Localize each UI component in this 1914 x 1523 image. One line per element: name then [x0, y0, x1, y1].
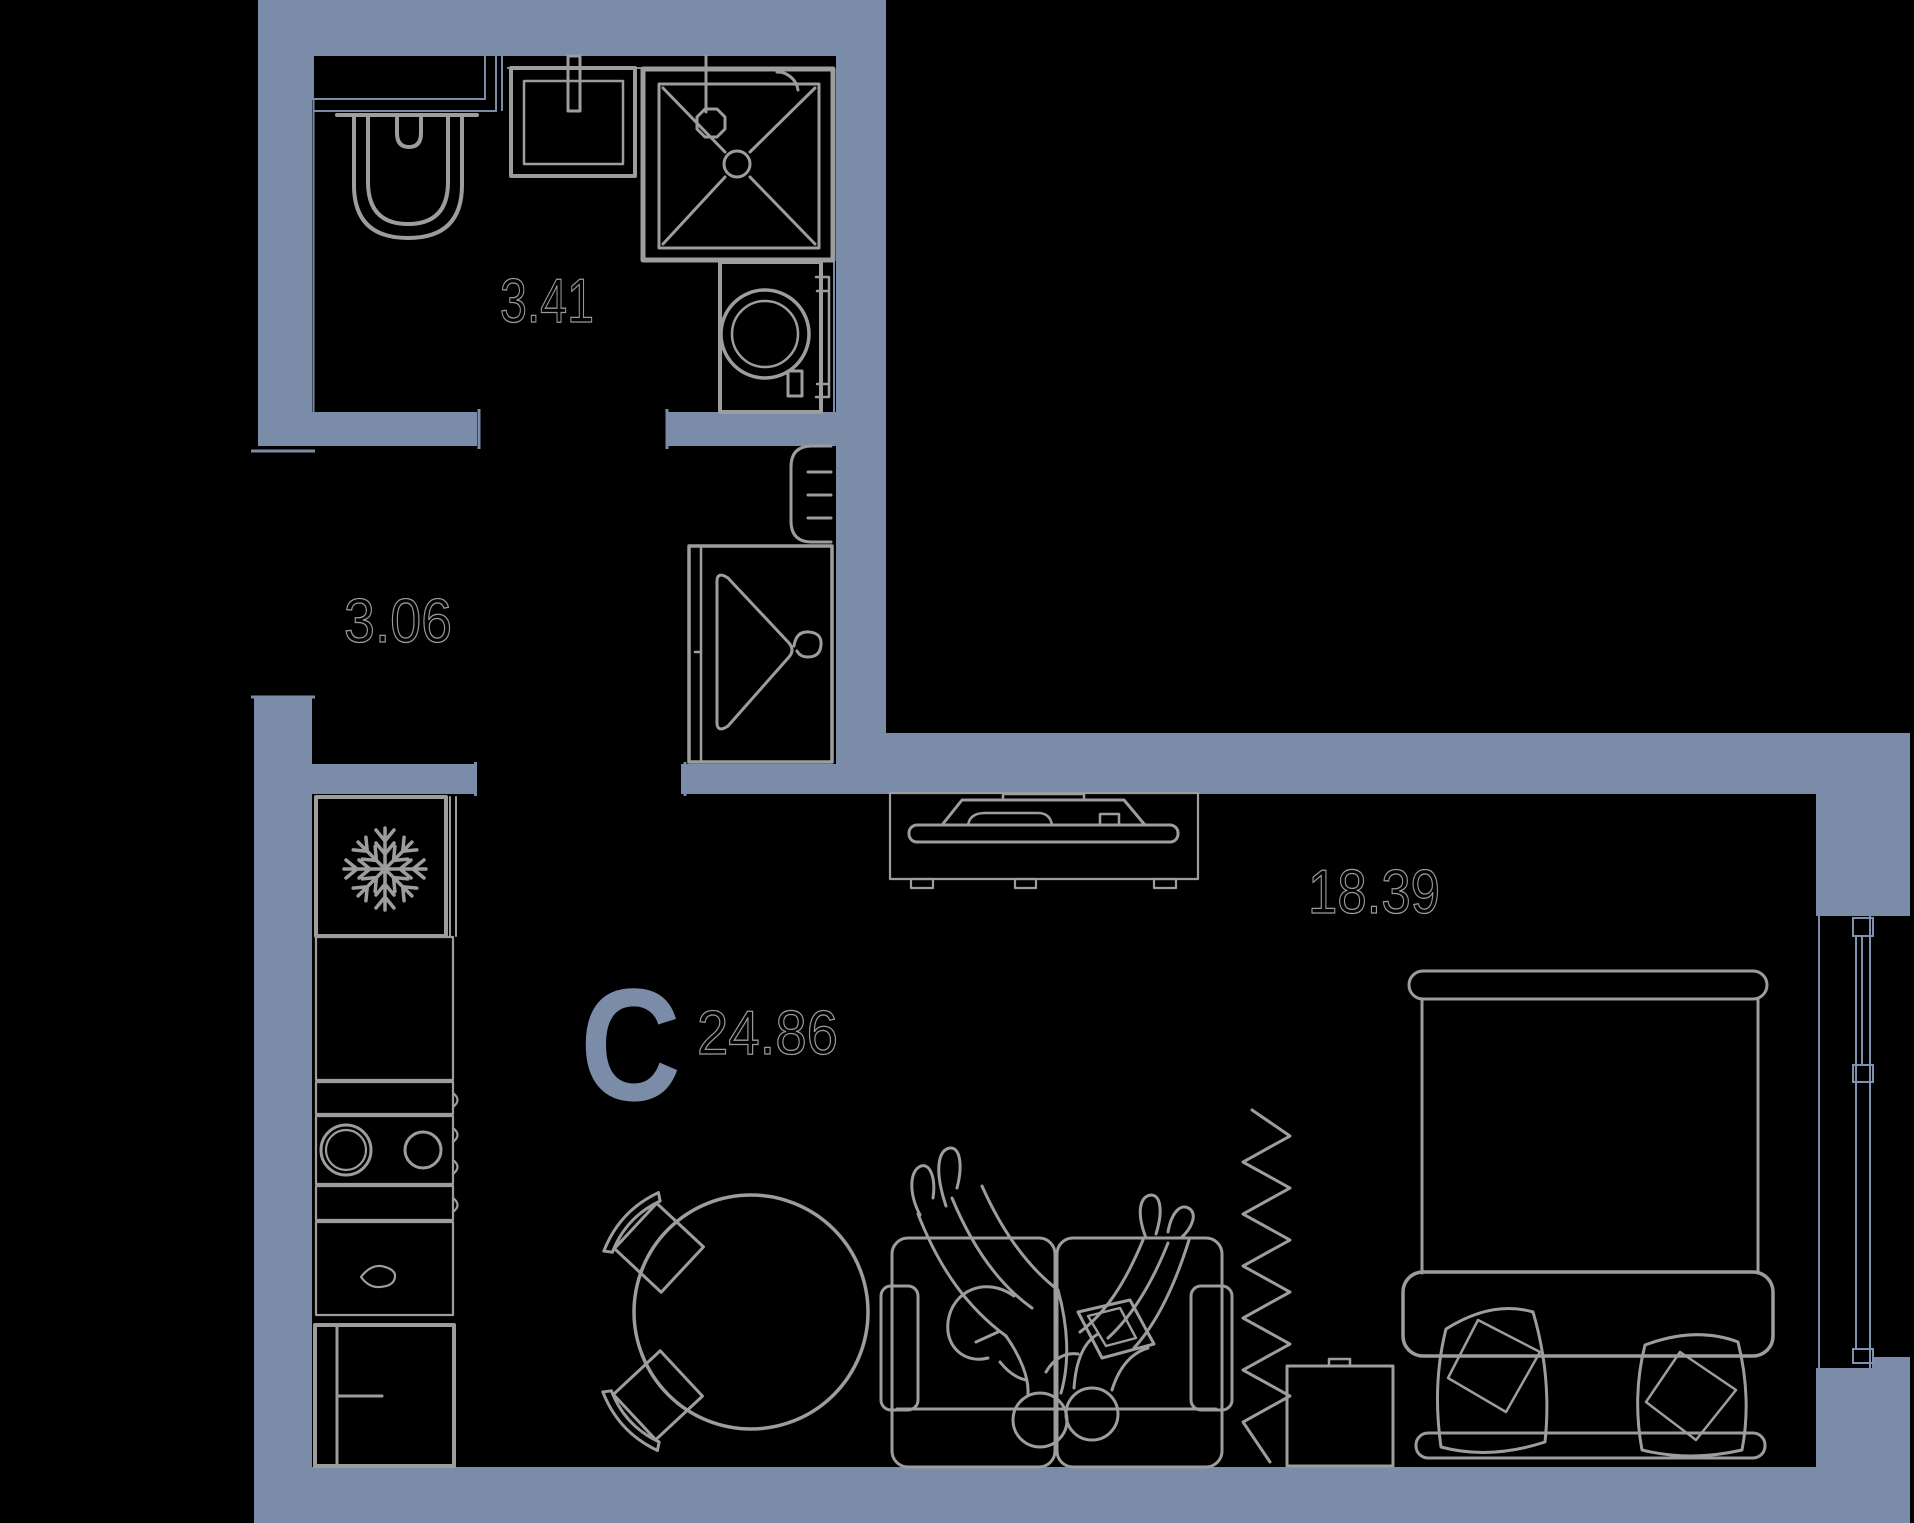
svg-text:3.41: 3.41: [500, 267, 594, 336]
svg-text:3.06: 3.06: [344, 587, 452, 656]
svg-text:24.86: 24.86: [697, 999, 838, 1068]
svg-text:18.39: 18.39: [1308, 858, 1440, 927]
svg-text:C: C: [580, 955, 681, 1134]
